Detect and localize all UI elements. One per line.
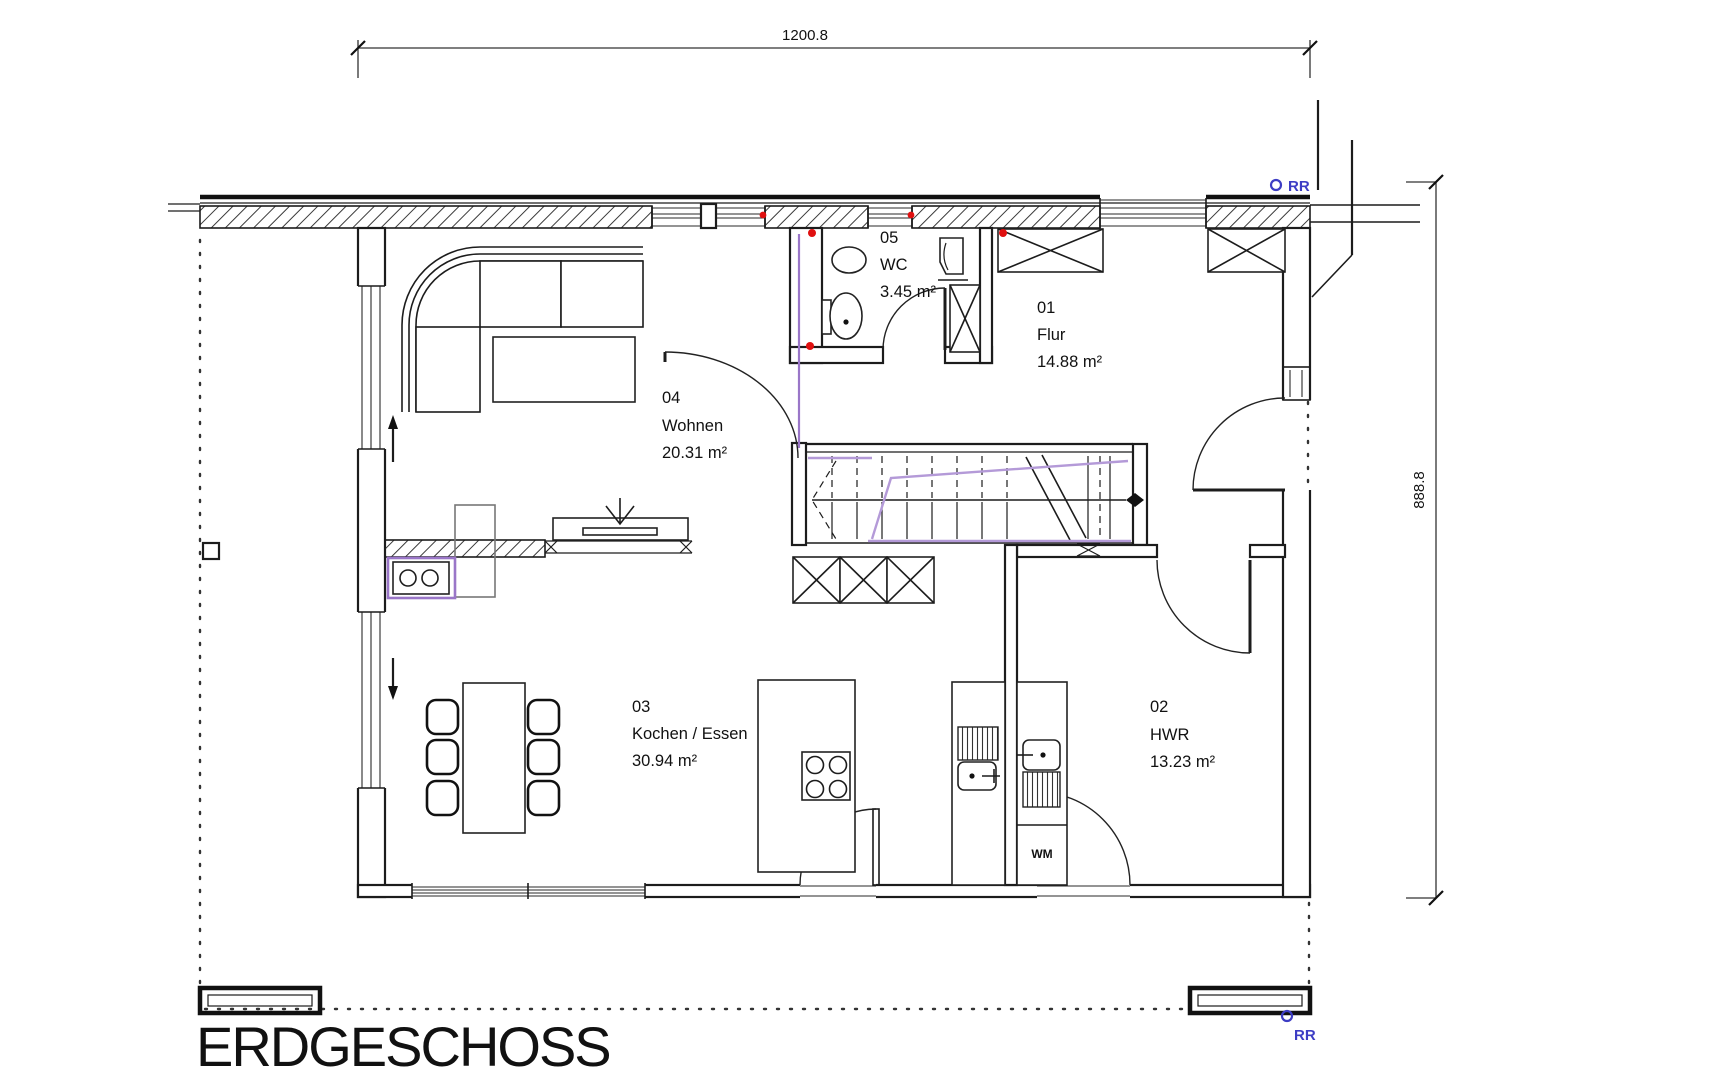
hall-wardrobe	[998, 229, 1285, 272]
right-exterior-wall	[1193, 228, 1312, 897]
under-stair-cabinets	[793, 557, 934, 603]
bottom-window-kitchen	[412, 883, 645, 899]
room-area: 20.31 m²	[662, 444, 728, 462]
room-name: WC	[880, 256, 908, 274]
rr-marker-bottom: RR	[1282, 1011, 1316, 1044]
room-number: 05	[880, 229, 898, 247]
top-exterior-wall	[200, 197, 1310, 228]
top-dimension: 1200.8	[351, 27, 1317, 78]
left-window-living	[356, 286, 387, 449]
top-dimension-label: 1200.8	[782, 27, 828, 44]
kitchen-counter	[952, 682, 1005, 885]
room-number: 03	[632, 698, 650, 716]
room-label-wohnen: 04 Wohnen 20.31 m²	[662, 389, 728, 462]
hwr-sink	[1017, 740, 1060, 807]
ventilation-shaft	[950, 285, 980, 352]
room-number: 02	[1150, 698, 1168, 716]
room-area: 30.94 m²	[632, 752, 698, 770]
room-number: 04	[662, 389, 680, 407]
kitchen-sink	[958, 727, 1000, 790]
room-label-hwr: 02 HWR 13.23 m²	[1150, 698, 1216, 771]
hwr-counter: WM	[1017, 682, 1067, 885]
cooktop	[802, 752, 850, 800]
washbasin	[832, 247, 866, 273]
page-title: ERDGESCHOSS	[196, 1015, 610, 1078]
tv-sideboard	[385, 498, 692, 557]
room-name: HWR	[1150, 726, 1189, 744]
room-area: 13.23 m²	[1150, 753, 1216, 771]
right-dimension-label: 888.8	[1411, 471, 1428, 509]
toilet	[822, 293, 862, 339]
washing-machine-label: WM	[1031, 847, 1052, 861]
room-label-kochen: 03 Kochen / Essen 30.94 m²	[632, 698, 748, 770]
corner-sink	[938, 238, 968, 280]
left-exterior-wall	[356, 228, 387, 897]
top-window-wc	[868, 206, 912, 228]
kitchen-island	[758, 680, 855, 872]
room-name: Kochen / Essen	[632, 725, 748, 743]
left-window-dining	[356, 612, 387, 788]
svg-text:RR: RR	[1288, 178, 1310, 195]
room-label-wc: 05 WC 3.45 m²	[880, 229, 936, 301]
room-name: Flur	[1037, 326, 1066, 344]
room-area: 14.88 m²	[1037, 353, 1103, 371]
rr-marker-top: RR	[1271, 178, 1310, 195]
floor-plan-canvas: 1200.8 888.8	[0, 0, 1720, 1086]
living-room-door	[665, 352, 798, 458]
coffee-table	[493, 337, 635, 402]
room-name: Wohnen	[662, 417, 723, 435]
stairs	[806, 444, 1144, 543]
dining-table	[427, 683, 559, 833]
room-area: 3.45 m²	[880, 283, 936, 301]
room-label-flur: 01 Flur 14.88 m²	[1037, 299, 1103, 371]
room-number: 01	[1037, 299, 1055, 317]
top-window-living	[652, 204, 765, 228]
svg-text:RR: RR	[1294, 1027, 1316, 1044]
right-dimension: 888.8	[1406, 175, 1443, 905]
hwr-door	[1157, 560, 1250, 653]
